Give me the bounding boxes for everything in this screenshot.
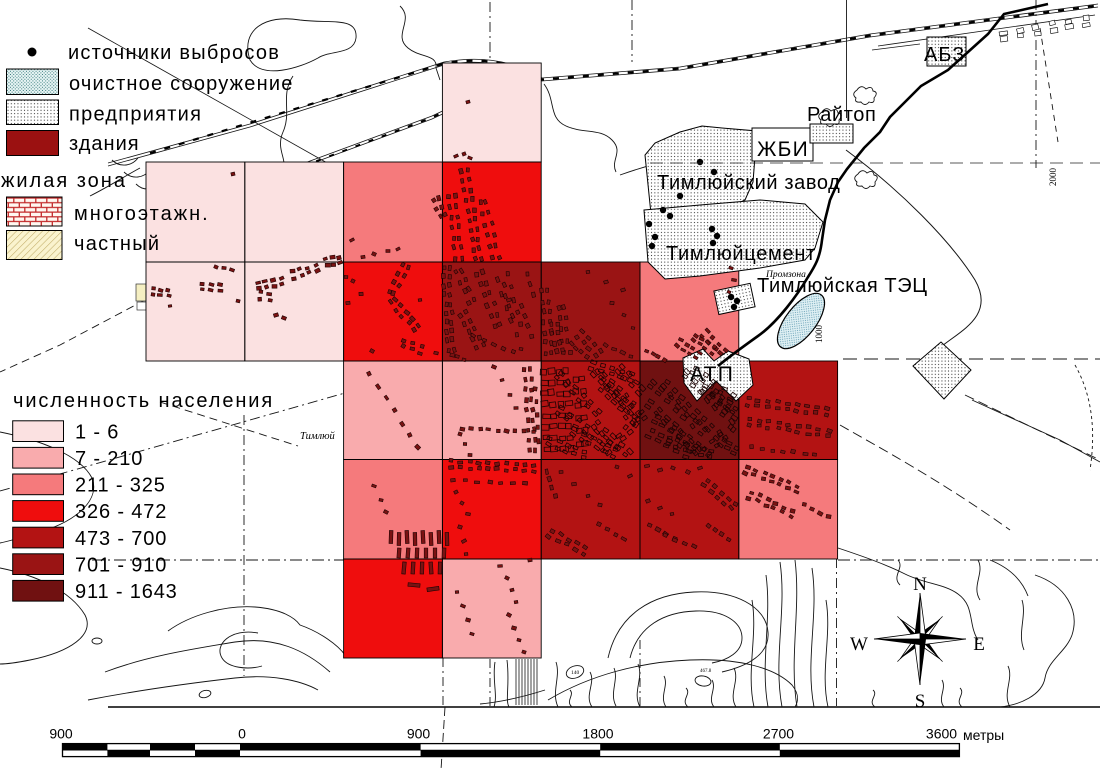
svg-text:источники выбросов: источники выбросов: [68, 42, 280, 64]
svg-text:1800: 1800: [582, 726, 613, 742]
svg-text:0: 0: [238, 726, 246, 742]
svg-text:многоэтажн.: многоэтажн.: [74, 203, 210, 225]
svg-text:2700: 2700: [763, 726, 794, 742]
svg-text:473 - 700: 473 - 700: [75, 528, 167, 550]
svg-text:Промзона: Промзона: [765, 270, 806, 280]
svg-text:предприятия: предприятия: [69, 104, 202, 126]
svg-text:2000: 2000: [1048, 168, 1058, 187]
svg-text:1 - 6: 1 - 6: [75, 421, 119, 443]
svg-text:900: 900: [49, 726, 73, 742]
svg-text:E: E: [973, 634, 985, 655]
svg-text:900: 900: [407, 726, 431, 742]
svg-text:частный: частный: [74, 233, 160, 255]
svg-text:очистное сооружение: очистное сооружение: [69, 73, 294, 95]
svg-text:326 - 472: 326 - 472: [75, 501, 167, 523]
svg-text:Райтоп: Райтоп: [807, 104, 876, 126]
svg-text:701 - 910: 701 - 910: [75, 554, 167, 576]
svg-text:АБЗ: АБЗ: [924, 44, 965, 66]
svg-text:ЖБИ: ЖБИ: [757, 138, 809, 161]
svg-text:жилая зона: жилая зона: [1, 170, 127, 192]
svg-text:911 - 1643: 911 - 1643: [75, 581, 178, 603]
svg-text:Тимлюйцемент: Тимлюйцемент: [666, 243, 816, 265]
svg-text:АТП: АТП: [690, 363, 734, 386]
svg-text:3600: 3600: [926, 726, 957, 742]
svg-text:S: S: [915, 691, 926, 712]
svg-text:N: N: [913, 574, 927, 595]
svg-text:W: W: [850, 634, 868, 655]
svg-text:467.8: 467.8: [700, 669, 712, 674]
svg-text:140: 140: [571, 670, 580, 676]
svg-text:Тимлюйский завод: Тимлюйский завод: [657, 172, 840, 194]
svg-text:7 - 210: 7 - 210: [75, 448, 143, 470]
svg-text:метры: метры: [963, 727, 1004, 743]
svg-text:численность населения: численность населения: [13, 390, 274, 412]
svg-text:Тимлюй: Тимлюй: [300, 431, 336, 442]
svg-text:211 - 325: 211 - 325: [75, 475, 166, 497]
svg-text:здания: здания: [69, 133, 140, 155]
svg-text:1000: 1000: [814, 325, 824, 344]
